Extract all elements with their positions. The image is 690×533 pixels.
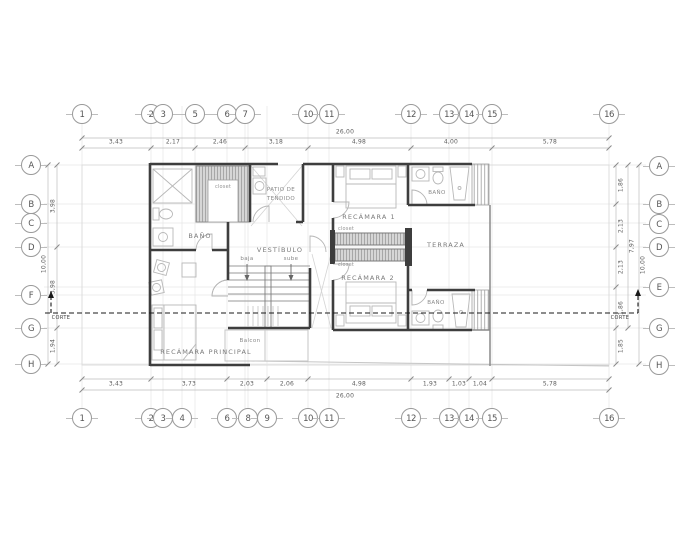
louver-top	[472, 164, 489, 205]
grid-bubble-top-15: 15	[482, 104, 502, 124]
grid-bubble-left-F: F	[21, 285, 41, 305]
dim-left-seg: 1,94	[50, 339, 57, 353]
dim-bottom-seg: 1,93	[423, 381, 437, 388]
louver-bottom	[472, 290, 489, 330]
room-label-bano-bottom: BAÑO	[427, 300, 445, 306]
dim-left-overall: 10,00	[41, 255, 48, 273]
dim-top-seg: 2,17	[166, 139, 180, 146]
label-stair-down: baja	[240, 256, 253, 262]
bed-recamara-2	[336, 282, 406, 326]
grid-bubble-right-D: D	[649, 237, 669, 257]
grid-bubble-bottom-12: 12	[401, 408, 421, 428]
room-label-bano-top: BAÑO	[428, 190, 446, 196]
dim-top-seg: 4,00	[444, 139, 458, 146]
dim-right-seg: 1,86	[618, 178, 625, 192]
label-stair-up: sube	[284, 256, 299, 262]
grid-bubble-top-1: 1	[72, 104, 92, 124]
grid-bubble-bottom-11: 11	[319, 408, 339, 428]
label-section-right: CORTE	[611, 315, 630, 321]
dim-right-seg: 2,13	[618, 260, 625, 274]
grid-bubble-top-12: 12	[401, 104, 421, 124]
dim-right-seg: 1,86	[618, 301, 625, 315]
dim-right-overall: 10,00	[640, 256, 647, 274]
dim-right-span: 7,97	[629, 239, 636, 253]
room-label-vestibulo: VESTÍBULO	[257, 246, 303, 254]
dim-bottom-seg: 1,04	[473, 381, 487, 388]
grid-bubble-right-A: A	[649, 156, 669, 176]
dim-right-seg: 2,13	[618, 219, 625, 233]
room-label-recamara-1: RECÁMARA 1	[342, 213, 396, 221]
dim-top-seg: 5,78	[543, 139, 557, 146]
dim-bottom-seg: 4,98	[352, 381, 366, 388]
grid-bubble-bottom-4: 4	[172, 408, 192, 428]
bathtub	[153, 169, 192, 203]
dim-top-seg: 2,46	[213, 139, 227, 146]
dim-top-seg: 4,98	[352, 139, 366, 146]
dim-right-seg: 1,85	[618, 339, 625, 353]
grid-bubble-right-C: C	[649, 214, 669, 234]
dim-bottom-seg: 2,03	[240, 381, 254, 388]
staircase	[228, 266, 310, 328]
dim-left-seg: 3,98	[50, 280, 57, 294]
grid-bubble-left-C: C	[21, 213, 41, 233]
grid-bubble-left-H: H	[21, 354, 41, 374]
room-label-terraza: TERRAZA	[427, 241, 465, 249]
grid-bubble-top-11: 11	[319, 104, 339, 124]
room-label-balcon: Balcon	[240, 338, 261, 344]
dim-bottom-seg: 2,06	[280, 381, 294, 388]
grid-bubble-right-G: G	[649, 318, 669, 338]
balcony-outline	[225, 330, 609, 366]
dim-bottom-overall: 26,00	[336, 393, 354, 400]
dim-bottom-seg: 3,73	[182, 381, 196, 388]
dim-bottom-seg: 1,03	[452, 381, 466, 388]
terrace-walls	[472, 205, 490, 366]
grid-bubble-left-D: D	[21, 237, 41, 257]
dim-bottom-seg: 5,78	[543, 381, 557, 388]
label-closet-bath: closet	[215, 184, 231, 190]
grid-bubble-top-16: 16	[599, 104, 619, 124]
room-label-bano-left: BAÑO	[188, 232, 211, 240]
label-section-left: CORTE	[52, 315, 71, 321]
section-cut-line	[45, 289, 641, 313]
dim-top-seg: 3,18	[269, 139, 283, 146]
room-label-recamara-2: RECÁMARA 2	[341, 274, 395, 282]
grid-bubble-bottom-1: 1	[72, 408, 92, 428]
grid-bubble-bottom-9: 9	[257, 408, 277, 428]
grid-bubble-bottom-15: 15	[482, 408, 502, 428]
room-label-patio-line2: TENDIDO	[267, 196, 295, 202]
grid-bubble-left-A: A	[21, 155, 41, 175]
grid-bubble-right-E: E	[649, 277, 669, 297]
room-label-patio-line1: PATIO DE	[267, 187, 295, 193]
dim-top-overall: 26,00	[336, 129, 354, 136]
grid-bubble-top-5: 5	[185, 104, 205, 124]
stair-direction-arrows	[245, 264, 294, 281]
grid-bubble-bottom-16: 16	[599, 408, 619, 428]
dim-top-seg: 3,43	[109, 139, 123, 146]
grid-bubble-right-B: B	[649, 194, 669, 214]
grid-bubble-top-3: 3	[153, 104, 173, 124]
grid-bubble-left-B: B	[21, 194, 41, 214]
grid-bubble-right-H: H	[649, 355, 669, 375]
floorplan-sheet: 1 2 3 5 6 7 10 11 12 13 14 15 16 1 2 3 4…	[0, 0, 690, 533]
dim-left-seg: 3,98	[50, 199, 57, 213]
dim-bottom-seg: 3,43	[109, 381, 123, 388]
grid-bubble-top-7: 7	[235, 104, 255, 124]
grid-bubble-left-G: G	[21, 318, 41, 338]
label-closet-lower: closet	[338, 262, 354, 268]
room-label-recamara-principal: RECÁMARA PRINCIPAL	[160, 348, 251, 356]
label-closet-upper: closet	[338, 226, 354, 232]
master-bedroom-furniture	[149, 260, 196, 360]
